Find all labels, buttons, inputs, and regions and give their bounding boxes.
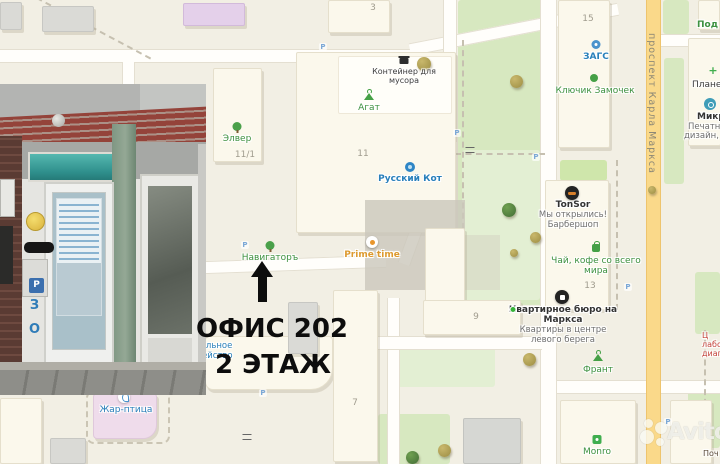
playground-icon [243, 434, 252, 440]
shop-bag-icon [592, 244, 600, 252]
green-patch-center [395, 345, 495, 387]
poi-kvartirnoe-title1: Квартирное бюро на [509, 305, 617, 315]
parking-icon: P [453, 129, 461, 137]
realty-bureau-icon [555, 290, 569, 304]
building-9 [423, 300, 521, 335]
poi-tea-line1: Чай, кофе со всего [551, 256, 641, 266]
photo-asphalt [0, 370, 206, 395]
poi-container-line2: мусора [372, 76, 436, 85]
green-strip-e [664, 58, 684, 184]
photo-inset-entrance: ВЗО P [0, 84, 206, 395]
hanger-icon [364, 93, 374, 100]
photo-sign-left [0, 179, 15, 217]
poi-dot-icon [510, 306, 517, 313]
building-grey-sw [50, 438, 86, 464]
building-sw [0, 398, 42, 464]
tree [510, 75, 523, 88]
photo-yellow-sticker [26, 212, 45, 231]
poi-russkiy-kot: Русский Кот [378, 174, 442, 184]
poi-tonsor: TonSor Мы открылись! Барбершоп [539, 200, 607, 230]
road-thin-south [387, 298, 400, 464]
street-label-karla-marksa: проспект Карла Маркса [646, 33, 657, 203]
poi-tonsor-line1: Мы открылись! [539, 210, 607, 220]
poi-mikro-line2: дизайн, фот [684, 131, 720, 141]
trash-container-icon [400, 58, 409, 64]
photo-lamp [52, 114, 65, 127]
poi-tea: Чай, кофе со всего мира [551, 256, 641, 276]
tree [523, 353, 536, 366]
building-11-top [338, 56, 452, 114]
tree-poi-icon [266, 241, 275, 250]
arrow-shaft [258, 275, 267, 302]
parking-icon: P [624, 283, 632, 291]
building-grey-nw1 [0, 2, 22, 30]
poi-lab-line2: лабор [702, 340, 720, 349]
poi-lab-line3: диагн [702, 349, 720, 358]
avito-logo-circle [640, 430, 654, 444]
cat-poi-icon [405, 162, 415, 172]
green-patch-e [695, 272, 720, 334]
building-3 [328, 0, 390, 33]
avito-logo-circle [644, 419, 653, 428]
photo-black-plate [24, 242, 54, 253]
pharmacy-cross-icon: + [708, 66, 717, 75]
building-number: 7 [352, 398, 358, 408]
tree [530, 232, 541, 243]
poi-kvartirnoe-title2: Маркса [509, 315, 617, 325]
avito-logo-circle [656, 438, 664, 446]
building-number: 15 [582, 14, 593, 24]
photo-right-door-glass [148, 186, 192, 334]
avito-watermark-text: Avito [667, 419, 720, 445]
poi-lab: Ц лабор диагн [702, 331, 720, 358]
road-short-vertical [122, 62, 135, 86]
photo-green-column [112, 124, 136, 376]
lawn-square [560, 160, 607, 181]
poi-elver: Элвер [223, 134, 252, 144]
photo-poster-text-lines [59, 204, 99, 262]
poi-monro: Monro [583, 447, 611, 457]
poi-kvartirnoe: Квартирное бюро на Маркса Квартиры в цен… [509, 305, 617, 345]
mikro-icon [704, 98, 716, 110]
road-right-horizontal [557, 380, 720, 394]
key-poi-icon [590, 74, 598, 82]
building-elver [213, 68, 262, 162]
poi-tonsor-line2: Барбершоп [539, 220, 607, 230]
hanger-icon [593, 354, 603, 361]
poi-frant: Франт [583, 365, 613, 375]
annotation-office-line1: ОФИС 202 [196, 314, 348, 344]
parking-icon: P [241, 241, 249, 249]
building-number: 9 [473, 312, 479, 322]
tree-poi-icon [233, 122, 242, 131]
parking-icon: P [532, 153, 540, 161]
tree [438, 444, 451, 457]
building-number: 11 [357, 149, 368, 159]
prime-time-icon [366, 236, 378, 248]
monro-icon [593, 435, 602, 444]
parking-icon: P [259, 389, 267, 397]
building-grey-s [463, 418, 521, 464]
photo-blue-sign: P [29, 278, 44, 293]
poi-container-line1: Контейнер для [372, 67, 436, 76]
photo-window-dark-left [0, 226, 13, 284]
avito-logo-circle [655, 422, 667, 434]
green-strip-ne [663, 0, 689, 34]
tree [510, 249, 518, 257]
poi-zhar-ptitsa: Жар-птица [100, 405, 153, 415]
path-b13-east [616, 160, 618, 310]
poi-pod-k: Под к [697, 20, 720, 30]
tree [406, 451, 419, 464]
poi-tea-line2: мира [551, 266, 641, 276]
building-grey-nw2 [42, 6, 94, 32]
poi-pochta: Поч [703, 449, 719, 459]
building-number: 11/1 [235, 150, 255, 160]
playground-icon [466, 147, 475, 153]
map-screenshot: P P P P P P P 3 11 11/1 15 13 9 7 проспе… [0, 0, 720, 464]
tonsor-barbershop-icon [565, 186, 579, 200]
poi-agat: Агат [358, 103, 380, 113]
poi-planeta: Планета [692, 80, 720, 90]
poi-zags: ЗАГС [583, 52, 609, 62]
poi-klyuchik: Ключик Замочек [555, 86, 634, 96]
poi-container: Контейнер для мусора [372, 67, 436, 85]
parking-icon: P [319, 43, 327, 51]
building-number: 13 [584, 281, 595, 291]
poi-tonsor-title: TonSor [539, 200, 607, 210]
zags-icon [592, 40, 601, 49]
poi-kvartirnoe-sub1: Квартиры в центре [509, 325, 617, 335]
poi-prime-time: Prime time [344, 250, 400, 260]
poi-mikro-title: Микро [697, 112, 720, 122]
building-slab-9n [425, 228, 465, 302]
poi-lab-line1: Ц [702, 331, 720, 340]
poi-kvartirnoe-sub2: левого берега [509, 335, 617, 345]
tree [502, 203, 516, 217]
annotation-office-line2: 2 ЭТАЖ [215, 350, 331, 380]
building-number: 3 [370, 3, 376, 13]
building-purple [183, 3, 245, 26]
